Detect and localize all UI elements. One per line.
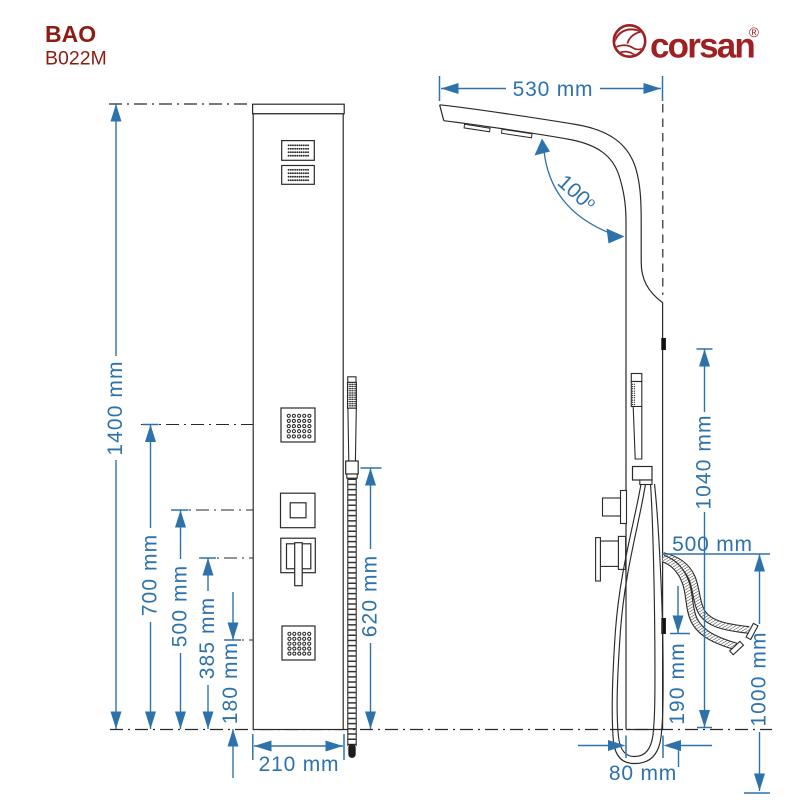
svg-text:500 mm: 500 mm xyxy=(672,533,753,556)
svg-text:B022M: B022M xyxy=(45,48,107,70)
svg-text:700 mm: 700 mm xyxy=(139,534,162,616)
svg-text:210 mm: 210 mm xyxy=(259,753,340,776)
svg-text:80 mm: 80 mm xyxy=(609,762,677,785)
svg-text:corsan: corsan xyxy=(650,27,754,66)
svg-text:530 mm: 530 mm xyxy=(513,78,594,101)
svg-text:®: ® xyxy=(749,25,759,40)
svg-text:385 mm: 385 mm xyxy=(196,597,219,679)
svg-text:1040 mm: 1040 mm xyxy=(693,414,716,509)
svg-text:1000 mm: 1000 mm xyxy=(748,631,771,726)
svg-text:190 mm: 190 mm xyxy=(666,642,689,724)
svg-text:180 mm: 180 mm xyxy=(219,642,242,724)
svg-text:620 mm: 620 mm xyxy=(359,555,382,637)
svg-text:BAO: BAO xyxy=(45,21,96,47)
svg-text:500 mm: 500 mm xyxy=(169,565,192,647)
svg-text:1400 mm: 1400 mm xyxy=(104,360,127,455)
